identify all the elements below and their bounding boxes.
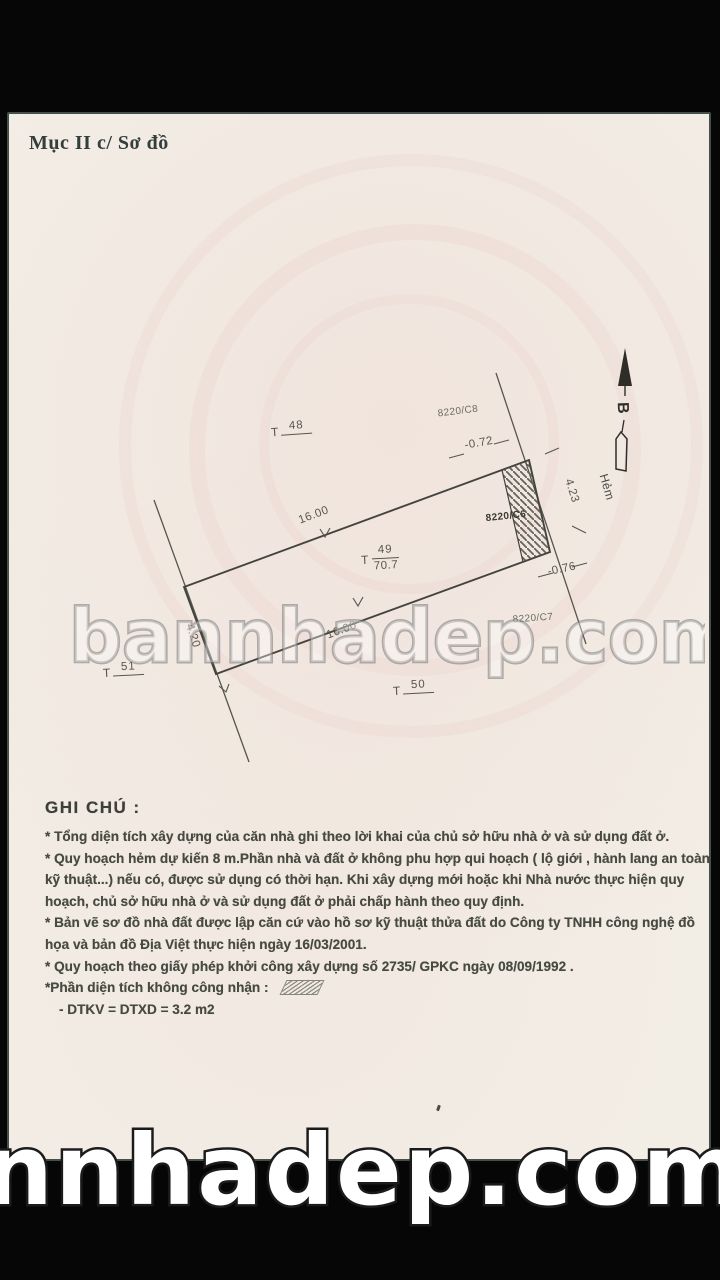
parcel-label-49: T4970.7 (360, 545, 400, 575)
top-black-bar (0, 0, 720, 112)
bottom-black-bar (0, 1163, 720, 1280)
cadastral-diagram: B 16.00 16.00 4.20 4.23 -0.72 -0.76 Hẻm … (9, 114, 711, 814)
parcel-area: 70.7 (374, 558, 399, 572)
parcel-label-50: T50 (393, 682, 435, 701)
note-paragraph-4: * Quy hoạch theo giấy phép khởi công xây… (45, 956, 711, 978)
north-arrow: B (614, 348, 632, 471)
diagram-geometry: B (9, 114, 711, 814)
notes-section: GHI CHÚ : * Tổng diện tích xây dựng của … (45, 798, 711, 1020)
parcel-number: 51 (113, 660, 145, 677)
parcel-label-51: T51 (103, 664, 145, 683)
note-paragraph-2: * Quy hoạch hẻm dự kiến 8 m.Phần nhà và … (45, 848, 711, 913)
parcel-prefix: T (361, 553, 369, 567)
note-paragraph-1: * Tổng diện tích xây dựng của căn nhà gh… (45, 826, 711, 848)
parcel-label-48: T48 (270, 423, 312, 443)
parcel-number: 48 (280, 419, 312, 436)
north-letter: B (614, 402, 631, 414)
dimension-arrow-bottom (353, 597, 363, 606)
parcel-prefix: T (103, 666, 111, 680)
notes-heading: GHI CHÚ : (45, 798, 711, 818)
document-page: Mục II c/ Sơ đồ (7, 112, 711, 1161)
boundary-line-left (154, 500, 249, 762)
note-paragraph-6: - DTKV = DTXD = 3.2 m2 (59, 999, 711, 1021)
note-paragraph-5: *Phần diện tích không công nhận : (45, 977, 711, 999)
note-paragraph-3: * Bản vẽ sơ đồ nhà đất được lập căn cứ v… (45, 912, 711, 955)
parcel-number: 50 (403, 678, 435, 695)
parcel-prefix: T (393, 684, 401, 698)
hatch-legend-swatch (279, 980, 324, 995)
scan-speckle (436, 1105, 441, 1112)
parcel-prefix: T (270, 425, 278, 439)
north-arrow-tail (616, 432, 627, 471)
unrecognized-area-label: *Phần diện tích không công nhận : (45, 977, 269, 999)
parcel-number: 49 (372, 543, 400, 559)
